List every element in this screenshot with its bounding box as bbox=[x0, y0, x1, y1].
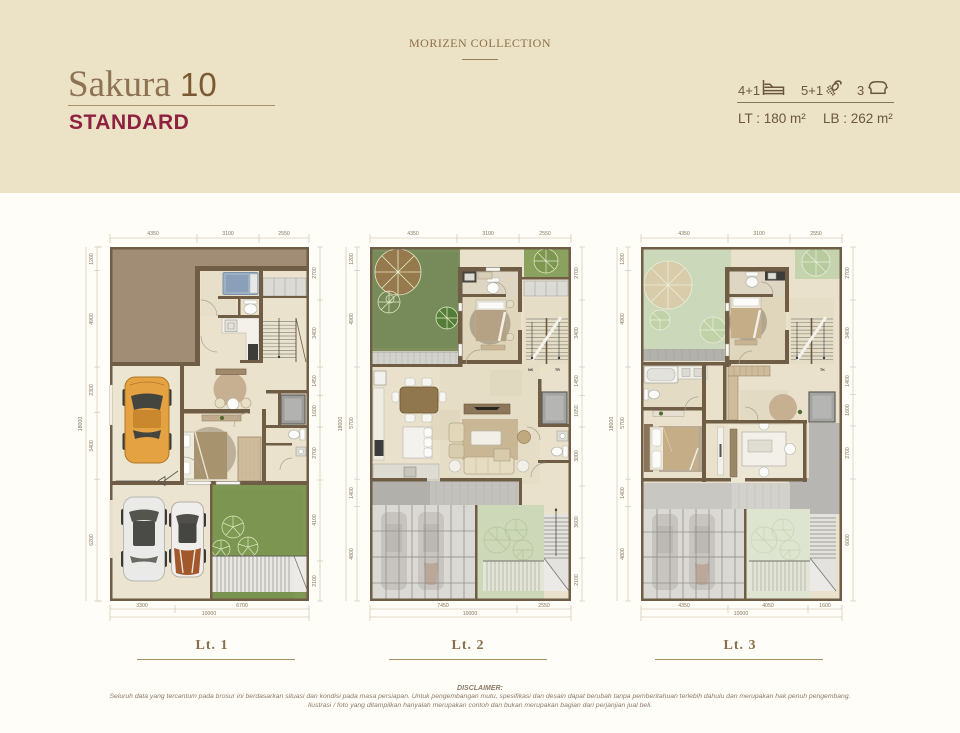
svg-text:6200: 6200 bbox=[89, 534, 95, 546]
svg-text:NK: NK bbox=[528, 368, 534, 372]
svg-text:2300: 2300 bbox=[89, 384, 95, 396]
svg-text:3100: 3100 bbox=[753, 231, 765, 237]
svg-text:2700: 2700 bbox=[574, 267, 580, 279]
svg-text:5700: 5700 bbox=[620, 417, 626, 429]
svg-text:2100: 2100 bbox=[574, 574, 580, 586]
svg-text:3400: 3400 bbox=[845, 327, 851, 339]
svg-text:4900: 4900 bbox=[620, 313, 626, 325]
svg-text:1600: 1600 bbox=[312, 405, 318, 417]
svg-text:4350: 4350 bbox=[407, 231, 419, 237]
svg-text:1450: 1450 bbox=[312, 375, 318, 387]
svg-text:3400: 3400 bbox=[312, 327, 318, 339]
svg-text:1200: 1200 bbox=[620, 253, 626, 265]
svg-text:2700: 2700 bbox=[312, 267, 318, 279]
svg-text:2700: 2700 bbox=[312, 447, 318, 459]
svg-text:3100: 3100 bbox=[482, 231, 494, 237]
svg-text:4900: 4900 bbox=[349, 313, 355, 325]
svg-text:1650: 1650 bbox=[574, 405, 580, 417]
svg-text:2550: 2550 bbox=[278, 231, 290, 237]
svg-text:3600: 3600 bbox=[574, 516, 580, 528]
svg-text:2700: 2700 bbox=[845, 267, 851, 279]
svg-text:1400: 1400 bbox=[845, 375, 851, 387]
svg-text:1400: 1400 bbox=[620, 487, 626, 499]
svg-text:1400: 1400 bbox=[349, 487, 355, 499]
svg-text:4800: 4800 bbox=[349, 548, 355, 560]
svg-text:3400: 3400 bbox=[574, 327, 580, 339]
svg-text:2550: 2550 bbox=[538, 603, 550, 609]
svg-text:1200: 1200 bbox=[89, 253, 95, 265]
svg-text:4350: 4350 bbox=[678, 231, 690, 237]
svg-text:4800: 4800 bbox=[620, 548, 626, 560]
svg-text:5700: 5700 bbox=[349, 417, 355, 429]
svg-text:2550: 2550 bbox=[539, 231, 551, 237]
svg-text:1200: 1200 bbox=[349, 253, 355, 265]
svg-text:3100: 3100 bbox=[222, 231, 234, 237]
svg-text:7450: 7450 bbox=[437, 603, 449, 609]
svg-text:1600: 1600 bbox=[845, 404, 851, 416]
svg-text:4100: 4100 bbox=[312, 514, 318, 526]
svg-text:18000: 18000 bbox=[78, 417, 84, 432]
svg-text:4900: 4900 bbox=[89, 313, 95, 325]
svg-text:TR: TR bbox=[555, 368, 560, 372]
svg-text:18000: 18000 bbox=[338, 417, 344, 432]
svg-text:1600: 1600 bbox=[819, 603, 831, 609]
svg-text:18000: 18000 bbox=[609, 417, 615, 432]
svg-text:3400: 3400 bbox=[89, 440, 95, 452]
svg-text:4350: 4350 bbox=[147, 231, 159, 237]
svg-text:6000: 6000 bbox=[845, 534, 851, 546]
svg-text:3300: 3300 bbox=[136, 603, 148, 609]
svg-text:10000: 10000 bbox=[202, 611, 217, 617]
svg-text:2550: 2550 bbox=[810, 231, 822, 237]
svg-text:10000: 10000 bbox=[463, 611, 478, 617]
svg-text:2100: 2100 bbox=[312, 575, 318, 587]
svg-text:3000: 3000 bbox=[574, 450, 580, 462]
svg-text:6700: 6700 bbox=[236, 603, 248, 609]
svg-text:2700: 2700 bbox=[845, 447, 851, 459]
svg-text:TK: TK bbox=[820, 368, 825, 372]
svg-text:10000: 10000 bbox=[734, 611, 749, 617]
svg-text:4050: 4050 bbox=[762, 603, 774, 609]
svg-text:1450: 1450 bbox=[574, 375, 580, 387]
svg-text:4350: 4350 bbox=[678, 603, 690, 609]
